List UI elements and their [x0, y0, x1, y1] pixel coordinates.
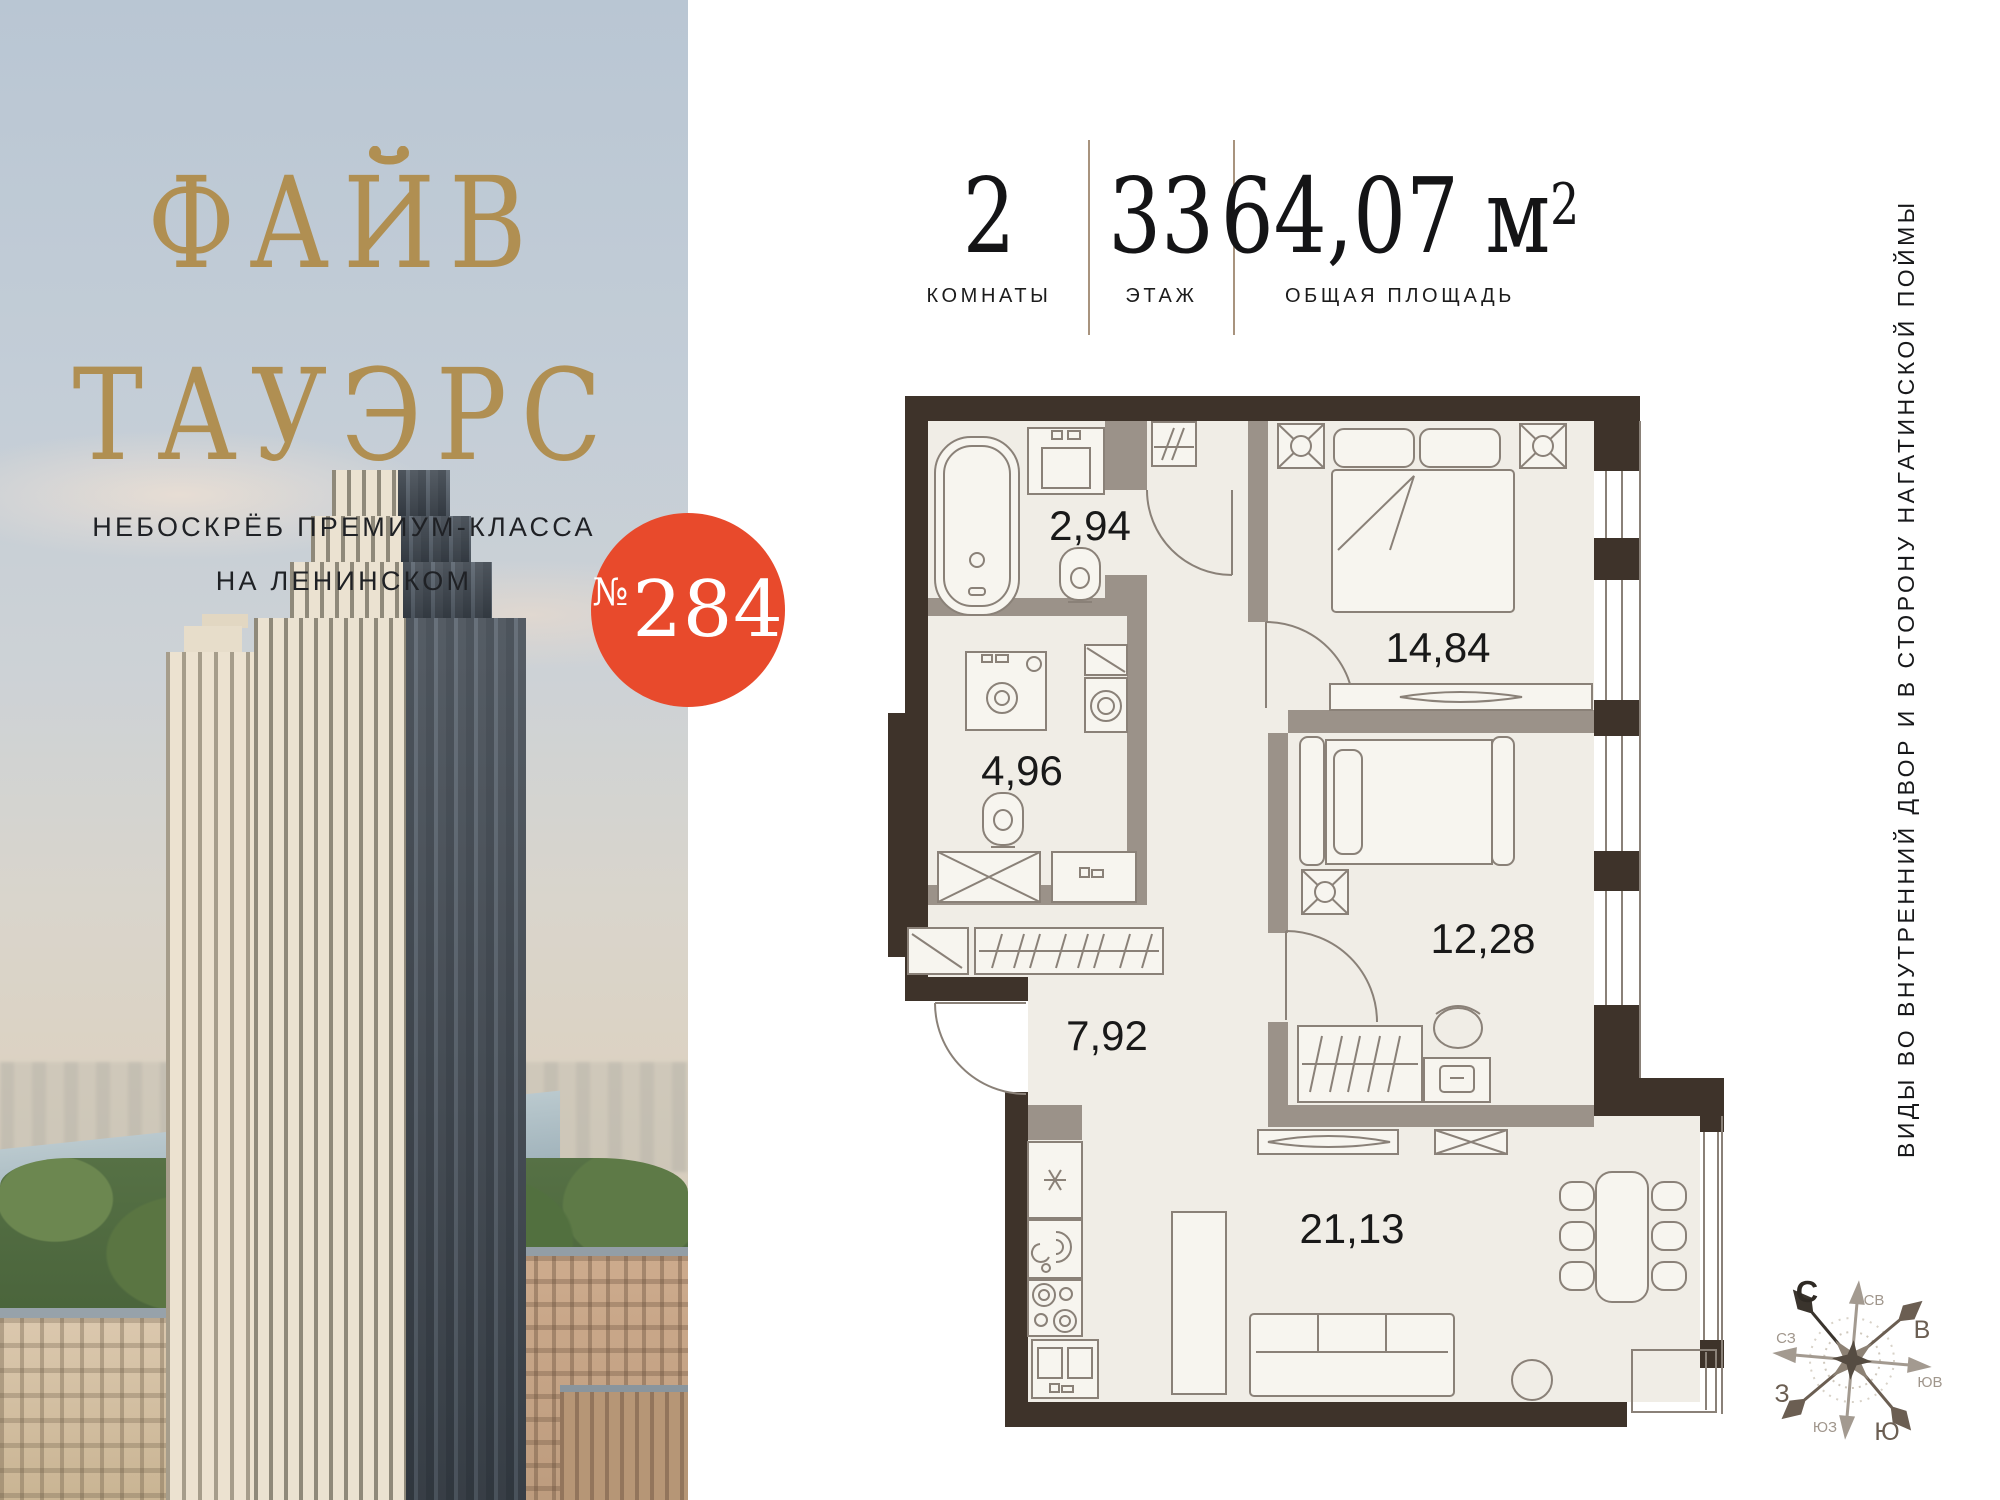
brand-title: ФАЙВ ТАУЭРС: [0, 128, 688, 511]
stat-floor-value: 33: [1109, 162, 1215, 271]
fridge: [1028, 1142, 1082, 1218]
corridor-closet: [1152, 422, 1196, 466]
storage-cabinet: [1435, 1130, 1507, 1154]
washing-machine: [1085, 678, 1127, 732]
compass-rose: С СВ В ЮВ Ю ЮЗ З СЗ: [1730, 1230, 2000, 1490]
bathtub: [935, 437, 1019, 615]
floor-plan: 2,94 4,96 14,84 12,28 7,92 21,13: [880, 380, 1740, 1450]
square-sup: 2: [1550, 172, 1579, 238]
brand-title-line1: ФАЙВ: [55, 128, 633, 320]
oven-cabinet: [1032, 1340, 1098, 1398]
stat-rooms-value: 2: [963, 162, 1016, 271]
shower-tray: [938, 852, 1040, 902]
vanity-sink: [1028, 428, 1104, 494]
brochure-page: ФАЙВ ТАУЭРС НЕБОСКРЁБ ПРЕМИУМ-КЛАССА НА …: [0, 0, 2000, 1500]
dining-set: [1560, 1172, 1686, 1302]
room-area-bedroom2: 12,28: [1430, 915, 1535, 962]
stat-floor-label: ЭТАЖ: [1125, 285, 1197, 308]
building-photo: ФАЙВ ТАУЭРС НЕБОСКРЁБ ПРЕМИУМ-КЛАССА НА …: [0, 0, 688, 1500]
double-bed: [1332, 429, 1514, 612]
nightstand-lamp: [1278, 424, 1324, 468]
laundry-sink: [966, 652, 1046, 730]
compass-label-nw: СЗ: [1776, 1330, 1796, 1347]
stat-floor: 33 ЭТАЖ: [1088, 140, 1235, 335]
toilet: [1060, 548, 1100, 602]
stat-total-area: 64,07 м2 ОБЩАЯ ПЛОЩАДЬ: [1235, 140, 1565, 335]
room-area-bathroom: 2,94: [1049, 502, 1131, 549]
tower-annex: [166, 652, 262, 1500]
view-note: ВИДЫ ВО ВНУТРЕННИЙ ДВОР И В СТОРОНУ НАГА…: [1893, 199, 1920, 1158]
entry-door: [935, 1003, 1026, 1094]
apartment-number-badge: № 284: [591, 513, 785, 707]
stove: [1028, 1280, 1082, 1336]
desk: [1424, 1058, 1490, 1102]
sofa: [1250, 1314, 1454, 1396]
brand-subtitle-line1: НЕБОСКРЁБ ПРЕМИУМ-КЛАССА: [0, 500, 688, 554]
compass-label-e: В: [1914, 1316, 1931, 1344]
room-area-bathroom2: 4,96: [981, 747, 1063, 794]
room-area-living: 21,13: [1299, 1205, 1404, 1252]
compass-label-s: Ю: [1874, 1418, 1899, 1446]
compass-label-w: З: [1774, 1380, 1789, 1408]
brand-subtitle-line2: НА ЛЕНИНСКОМ: [0, 554, 688, 608]
compass-label-sw: ЮЗ: [1813, 1419, 1837, 1436]
kitchen-island: [1172, 1212, 1226, 1394]
skyscraper: [254, 470, 526, 1500]
brand-subtitle: НЕБОСКРЁБ ПРЕМИУМ-КЛАССА НА ЛЕНИНСКОМ: [0, 500, 688, 608]
tower-shaft: [254, 618, 526, 1500]
compass-label-se: ЮВ: [1917, 1374, 1942, 1391]
apartment-stats: 2 КОМНАТЫ 33 ЭТАЖ 64,07 м2 ОБЩАЯ ПЛОЩАДЬ: [890, 140, 1565, 335]
toilet-2: [983, 793, 1023, 847]
nightstand-lamp: [1302, 870, 1348, 914]
wardrobe-rail: [1298, 1026, 1422, 1102]
compass-label-n: С: [1796, 1274, 1818, 1309]
dresser: [1330, 684, 1592, 710]
room-area-bedroom: 14,84: [1385, 624, 1490, 671]
stat-area-label: ОБЩАЯ ПЛОЩАДЬ: [1285, 285, 1515, 308]
hall-wardrobe: [975, 928, 1163, 974]
brand-title-line2: ТАУЭРС: [55, 320, 633, 512]
nightstand-lamp: [1520, 424, 1566, 468]
bathroom-counter: [1052, 852, 1136, 902]
apartment-number: 284: [632, 565, 783, 655]
stat-rooms-label: КОМНАТЫ: [927, 285, 1052, 308]
hall-niche-cabinet: [908, 928, 968, 974]
numero-sign: №: [592, 570, 628, 614]
compass-label-ne: СВ: [1864, 1292, 1885, 1309]
classic-building-right-wing: [560, 1392, 688, 1500]
stat-area-value: 64,07 м2: [1221, 162, 1579, 271]
stat-rooms: 2 КОМНАТЫ: [890, 140, 1088, 335]
tv-console: [1258, 1130, 1398, 1154]
room-area-hallway: 7,92: [1066, 1012, 1148, 1059]
kitchen-sink: [1028, 1220, 1082, 1278]
single-bed: [1300, 737, 1514, 865]
shelf-cabinet: [1085, 645, 1127, 675]
